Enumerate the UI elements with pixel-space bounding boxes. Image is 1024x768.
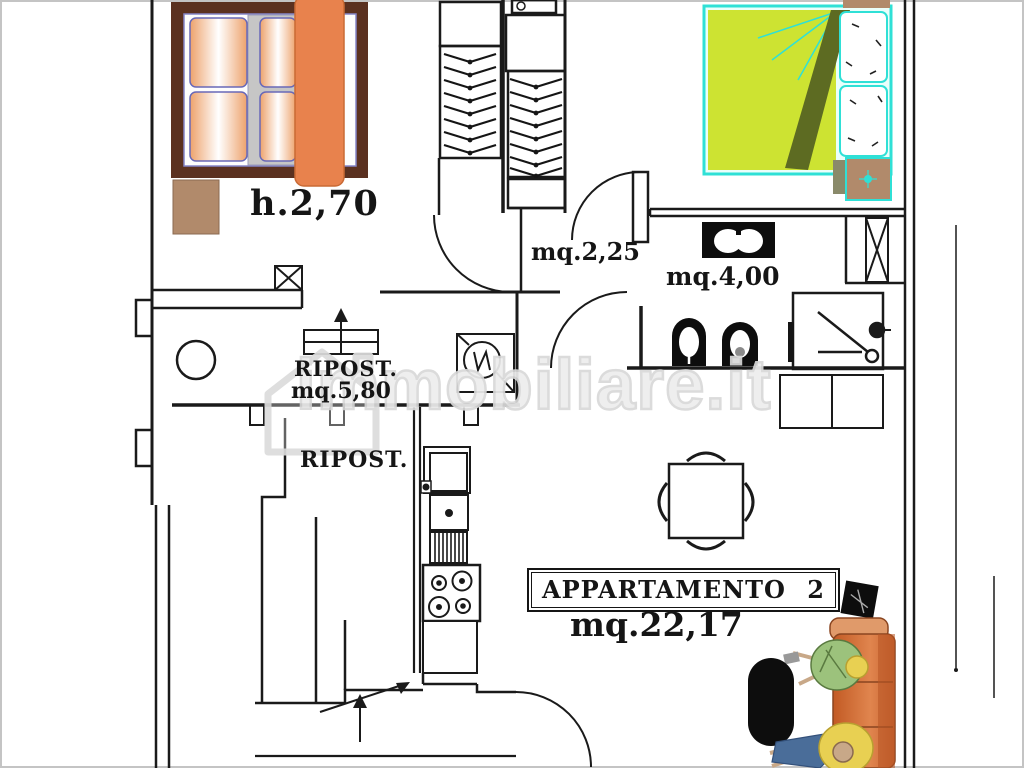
label-apartment-area: mq.22,17 (570, 608, 743, 641)
floor-plan: immobiliare.it h.2,70 mq.2,25 mq.4,00 RI… (0, 0, 1024, 768)
label-bath-area: mq.4,00 (666, 264, 780, 289)
nightstand-lamp-icon (846, 158, 891, 200)
steps-up-arrow (304, 308, 378, 354)
blanket-icon (295, 0, 344, 186)
counter-icon (423, 621, 477, 673)
pillow-icon (840, 86, 887, 156)
stove-icon (423, 565, 480, 621)
shower-icon (788, 293, 891, 369)
bathroom-sink-icon (702, 222, 775, 258)
cabinets (780, 375, 883, 428)
dishrack-icon (430, 532, 467, 563)
door-arc-hall (434, 215, 510, 292)
person-sitting-icon (783, 640, 868, 690)
nightstand-icon (173, 180, 219, 234)
wall-x-icon (275, 266, 302, 290)
double-bed-2 (704, 0, 891, 200)
toilet-icon (672, 318, 706, 366)
pillow-icon (190, 18, 247, 87)
boiler-icon (457, 334, 514, 392)
pillow-icon (260, 92, 296, 161)
apartment-title: APPARTAMENTO 2 (531, 572, 836, 608)
column-icon (177, 341, 215, 379)
bench-icon (833, 160, 846, 194)
bidet-icon (722, 322, 758, 366)
staircase (440, 0, 565, 213)
label-storage-2: RIPOST. (300, 449, 408, 471)
door-arc-bathroom (551, 292, 627, 368)
label-storage-area: mq.5,80 (291, 380, 391, 402)
pillow-icon (260, 18, 296, 87)
coffee-table-icon (748, 658, 794, 746)
double-bed-1 (171, 0, 368, 186)
label-storage: RIPOST. (294, 358, 398, 379)
pillow-icon (190, 92, 247, 161)
pillow-icon (840, 12, 887, 82)
door-arc-bedroom2 (572, 172, 640, 240)
door-arc-entrance (516, 692, 591, 767)
window-x-icon (866, 218, 888, 282)
label-hall-area: mq.2,25 (531, 240, 640, 264)
dining-table-icon (659, 453, 753, 549)
kitchen-block (421, 447, 480, 673)
floor-plan-drawing (0, 0, 1024, 768)
label-room-height: h.2,70 (250, 186, 379, 221)
tv-icon (840, 580, 878, 618)
headboard-icon (843, 0, 890, 8)
door-leaf-bedroom2 (633, 172, 648, 242)
